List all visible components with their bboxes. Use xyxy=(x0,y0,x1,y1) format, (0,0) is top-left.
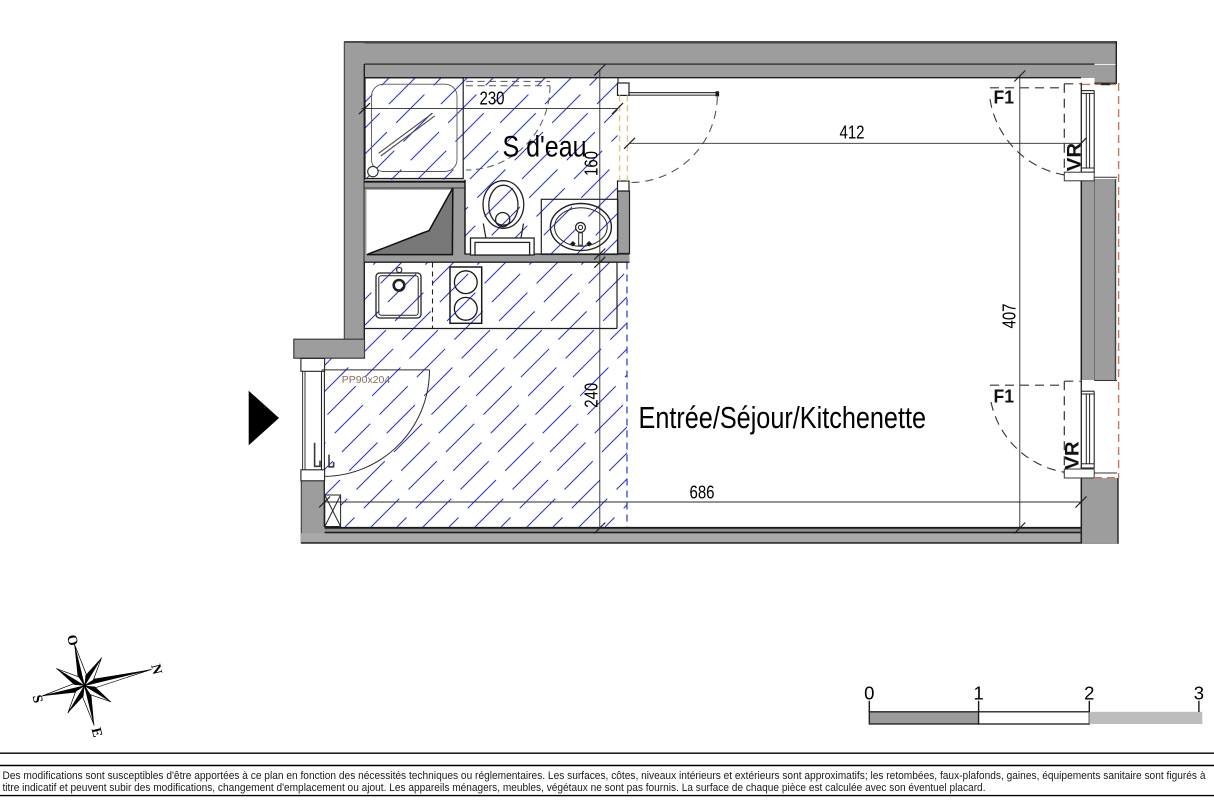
svg-text:Des modifications sont suscept: Des modifications sont susceptibles d'êt… xyxy=(3,770,1207,782)
svg-text:VR: VR xyxy=(1064,142,1085,171)
svg-text:PP90x204: PP90x204 xyxy=(342,374,391,386)
svg-text:2: 2 xyxy=(1084,682,1094,703)
svg-text:S d'eau: S d'eau xyxy=(503,131,587,164)
svg-text:686: 686 xyxy=(690,481,715,502)
svg-text:0: 0 xyxy=(864,682,874,703)
svg-text:1: 1 xyxy=(973,682,983,703)
svg-text:412: 412 xyxy=(840,122,865,143)
svg-text:3: 3 xyxy=(1194,682,1204,703)
svg-text:F1: F1 xyxy=(994,87,1015,107)
svg-text:407: 407 xyxy=(999,304,1020,329)
svg-text:240: 240 xyxy=(580,383,601,408)
svg-text:F1: F1 xyxy=(994,386,1015,406)
svg-text:titre indicatif et peuvent sub: titre indicatif et peuvent subir des mod… xyxy=(3,782,986,794)
svg-text:230: 230 xyxy=(480,88,505,109)
svg-text:VR: VR xyxy=(1063,441,1084,470)
svg-text:Entrée/Séjour/Kitchenette: Entrée/Séjour/Kitchenette xyxy=(639,400,927,435)
